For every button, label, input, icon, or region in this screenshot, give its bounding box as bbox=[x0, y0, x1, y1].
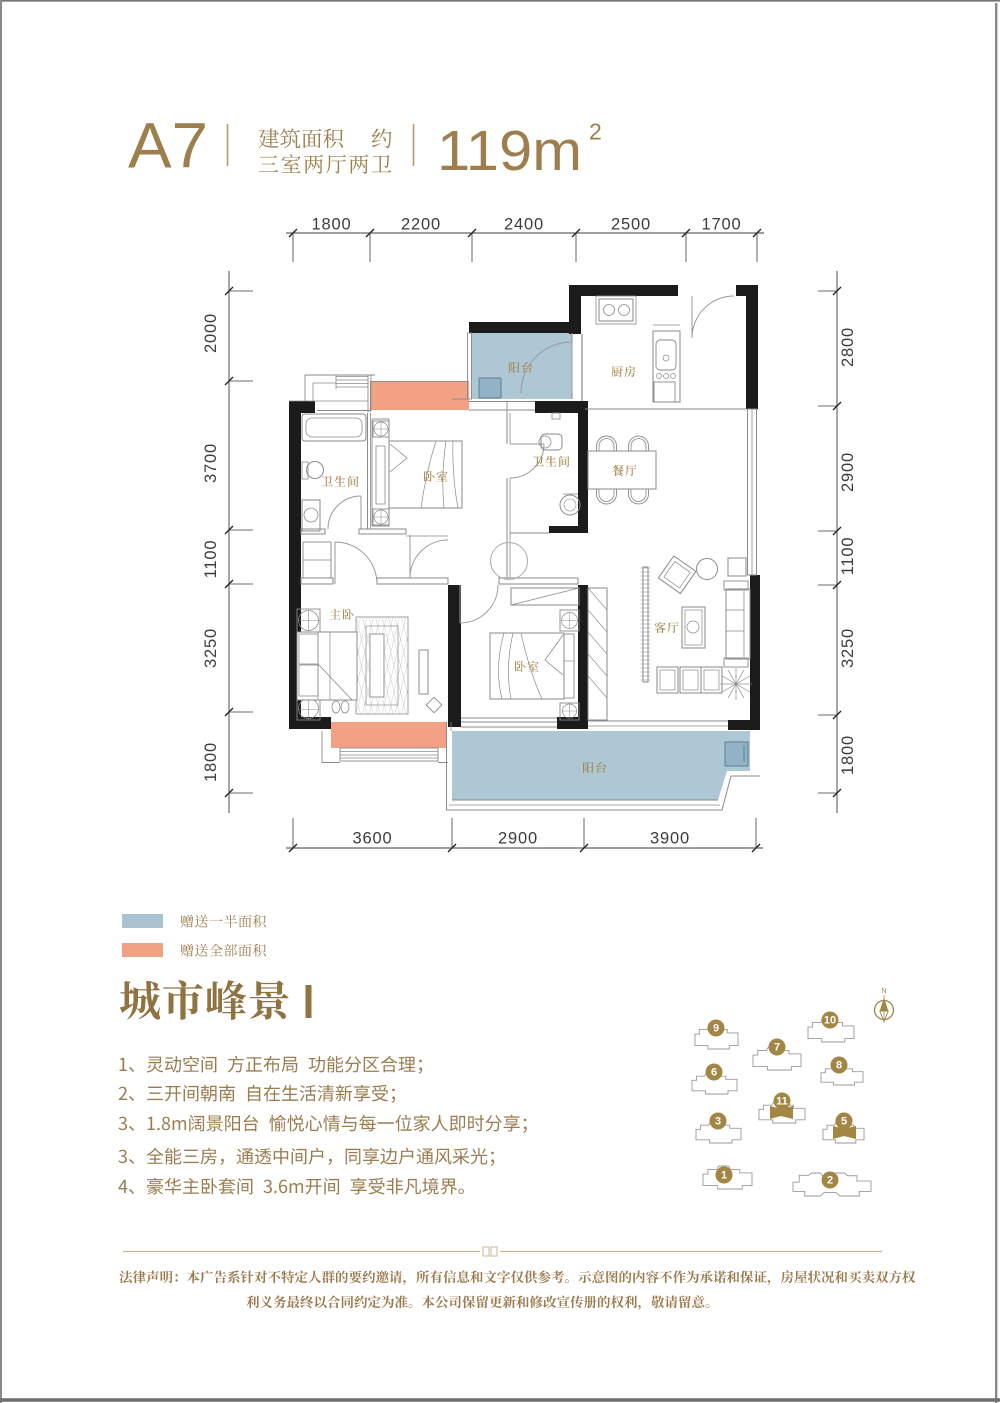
svg-text:1100: 1100 bbox=[839, 537, 857, 576]
svg-text:2800: 2800 bbox=[839, 327, 857, 367]
svg-text:9: 9 bbox=[713, 1023, 719, 1035]
svg-text:1800: 1800 bbox=[839, 735, 857, 775]
svg-text:3250: 3250 bbox=[202, 628, 220, 668]
svg-text:1100: 1100 bbox=[202, 540, 220, 579]
svg-text:8: 8 bbox=[836, 1060, 842, 1072]
svg-text:3250: 3250 bbox=[839, 628, 857, 668]
svg-text:11: 11 bbox=[776, 1096, 788, 1108]
svg-text:1800: 1800 bbox=[202, 742, 220, 782]
svg-text:2900: 2900 bbox=[839, 452, 857, 492]
svg-text:3: 3 bbox=[715, 1116, 721, 1128]
svg-text:6: 6 bbox=[711, 1067, 717, 1079]
svg-text:A7: A7 bbox=[128, 110, 208, 182]
svg-text:1700: 1700 bbox=[702, 216, 742, 234]
svg-text:3700: 3700 bbox=[202, 443, 220, 483]
svg-text:2200: 2200 bbox=[401, 216, 441, 234]
svg-text:2500: 2500 bbox=[611, 216, 651, 234]
svg-text:2: 2 bbox=[589, 119, 602, 145]
svg-text:10: 10 bbox=[824, 1015, 836, 1027]
svg-text:119m: 119m bbox=[437, 119, 582, 183]
svg-text:N: N bbox=[881, 986, 886, 995]
svg-text:5: 5 bbox=[841, 1116, 847, 1128]
svg-text:2900: 2900 bbox=[498, 830, 538, 848]
svg-text:3600: 3600 bbox=[353, 830, 393, 848]
svg-text:2400: 2400 bbox=[504, 216, 544, 234]
svg-text:1: 1 bbox=[721, 1170, 727, 1182]
svg-text:1800: 1800 bbox=[312, 216, 352, 234]
svg-text:7: 7 bbox=[774, 1042, 780, 1054]
svg-text:2000: 2000 bbox=[202, 313, 220, 353]
svg-text:3900: 3900 bbox=[650, 830, 690, 848]
svg-text:2: 2 bbox=[827, 1175, 833, 1187]
